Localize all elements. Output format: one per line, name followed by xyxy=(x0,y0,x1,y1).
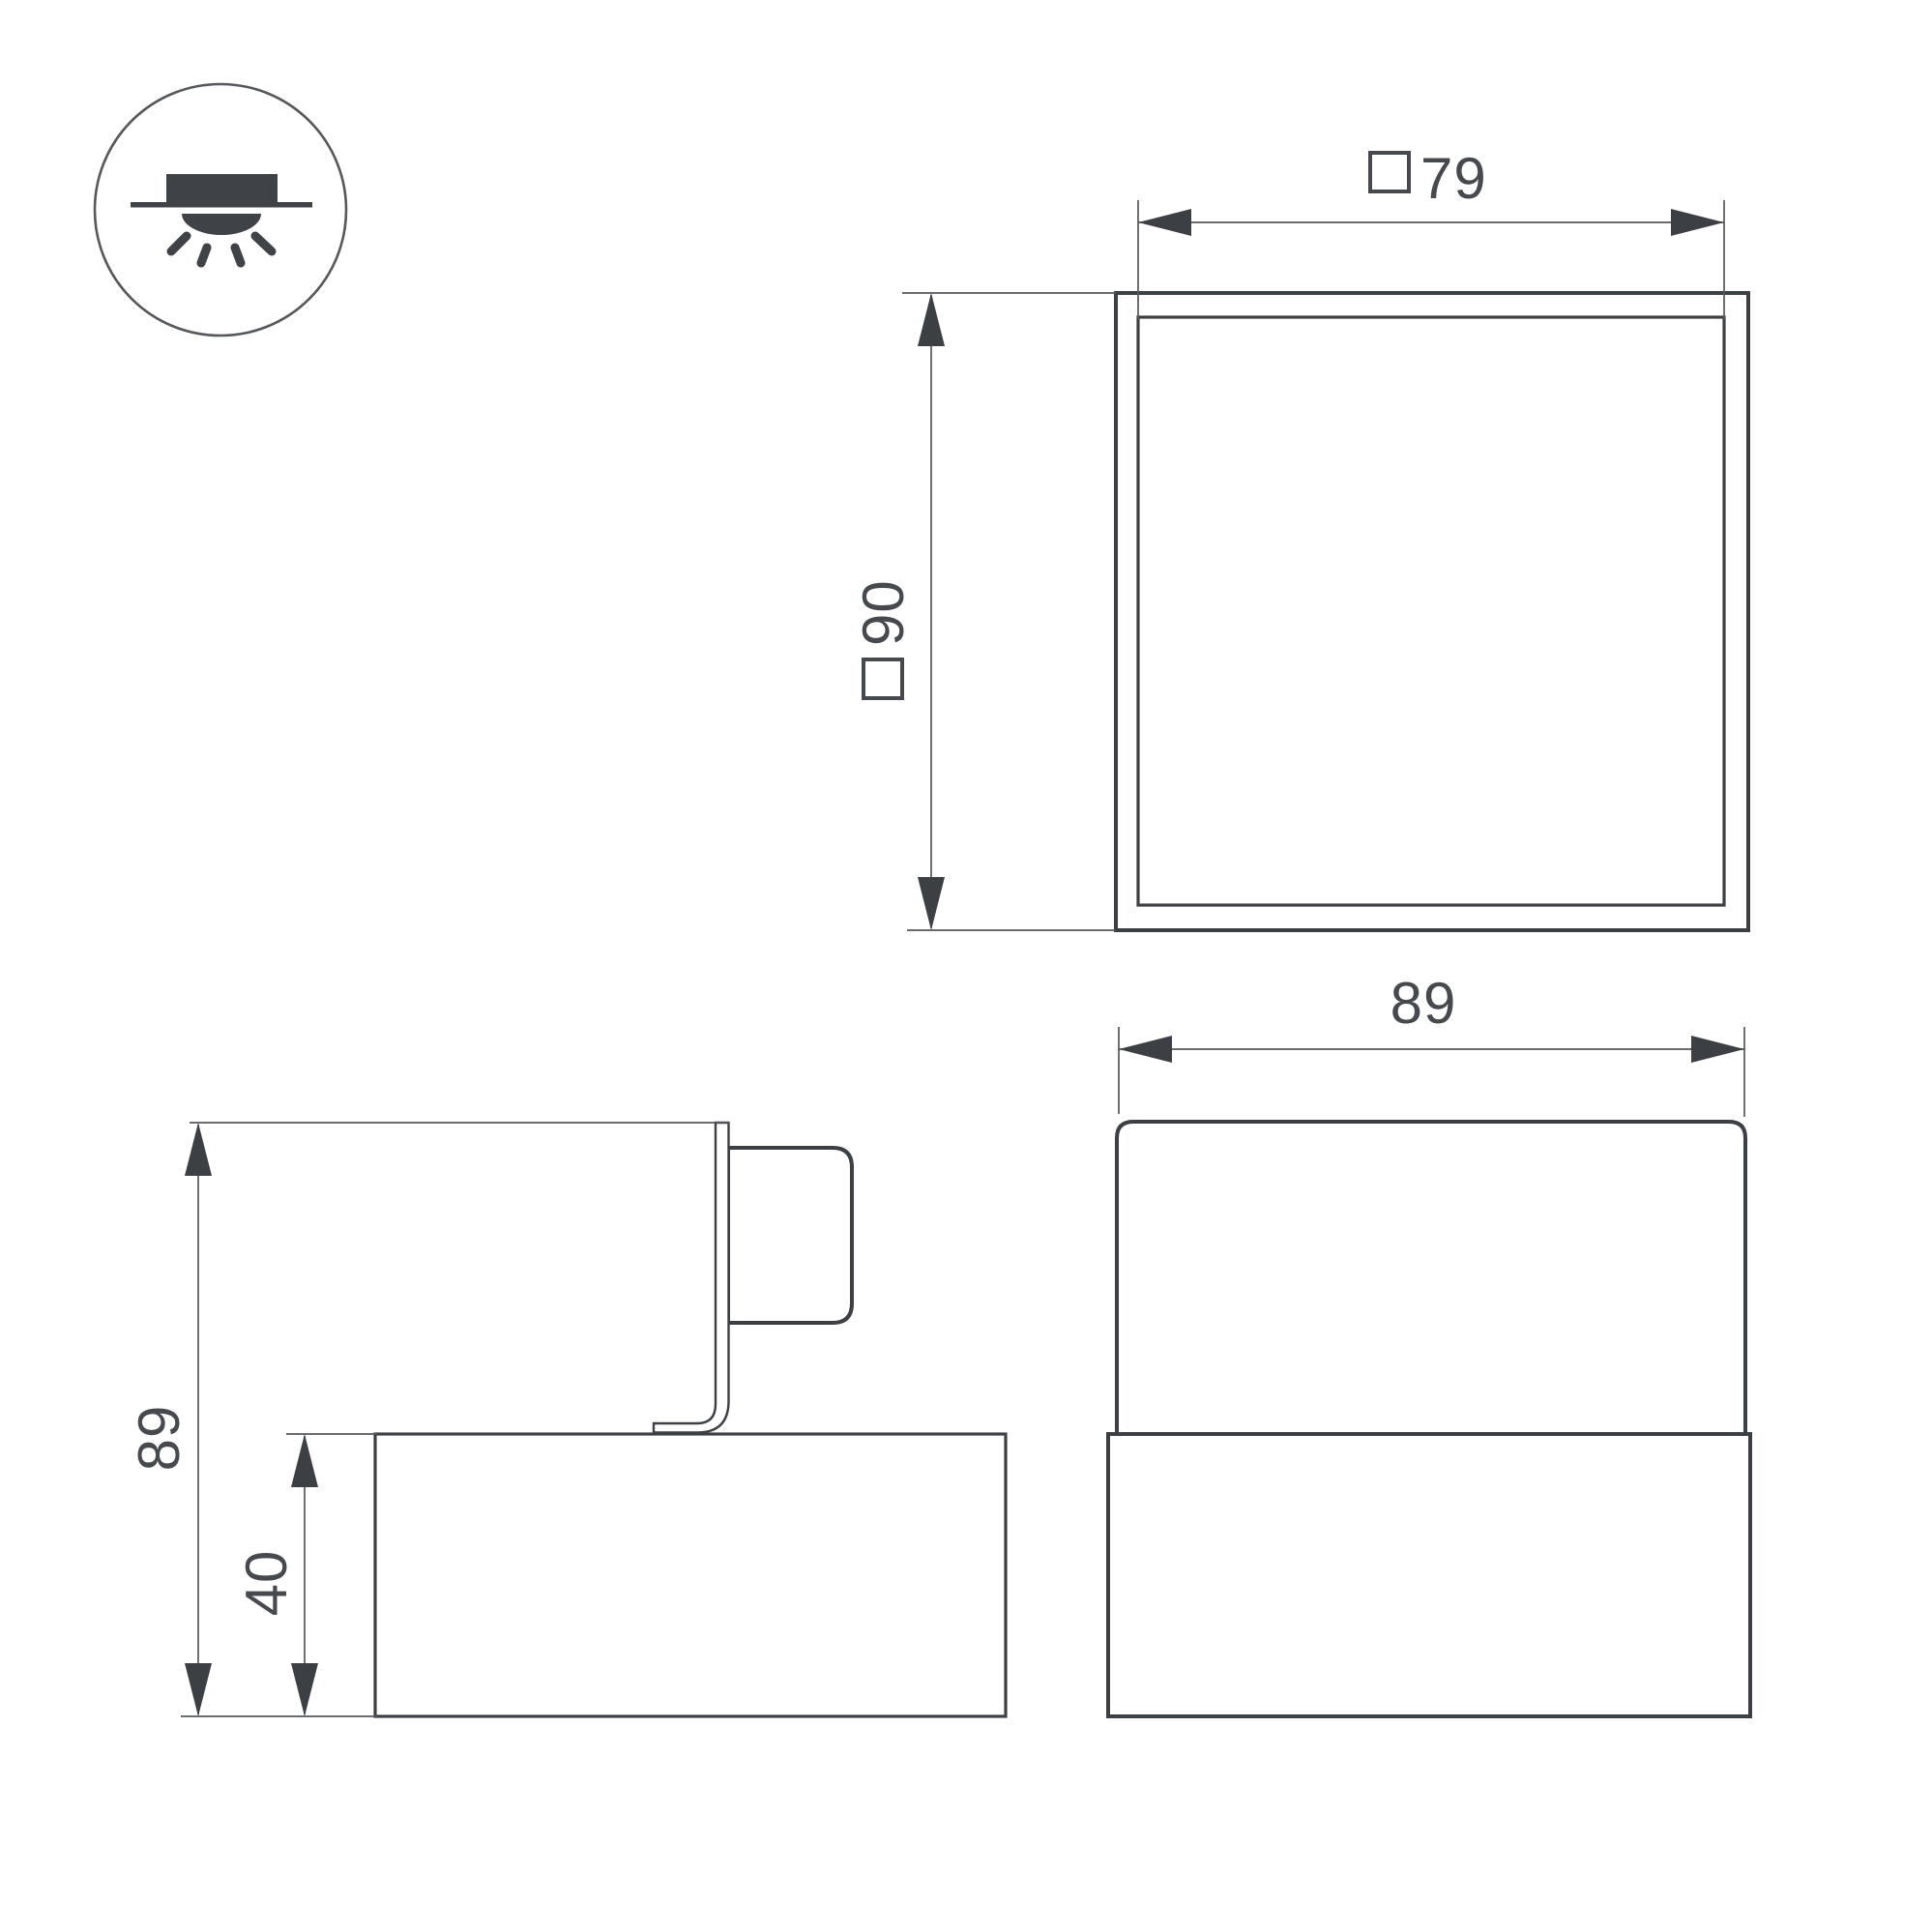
dimension-label: 89 xyxy=(127,1405,191,1472)
plan-inner-square xyxy=(1138,317,1724,905)
arrow-up-icon xyxy=(918,293,945,346)
icon-fixture-body xyxy=(166,174,278,204)
dimension-label: 79 xyxy=(1420,146,1487,211)
side-view: 89 40 xyxy=(127,1123,1006,1716)
dimension-height-89: 89 xyxy=(127,1123,377,1716)
icon-light-ray xyxy=(255,236,272,251)
front-view: 89 xyxy=(1108,971,1750,1716)
rotated-label-90: 90 xyxy=(851,579,916,698)
plan-view: 79 90 xyxy=(851,146,1748,930)
icon-circle xyxy=(95,84,346,336)
mounting-bracket xyxy=(654,1123,729,1433)
arrow-right-icon xyxy=(1691,1036,1744,1063)
icon-light-ray xyxy=(171,236,187,251)
arrow-up-icon xyxy=(185,1123,212,1176)
technical-drawing-page: 79 90 89 xyxy=(0,0,1932,1932)
rotated-label-40: 40 xyxy=(234,1550,299,1617)
square-symbol xyxy=(1370,153,1409,191)
recessed-ceiling-light-icon xyxy=(95,84,346,336)
dimension-size-90: 90 xyxy=(851,293,1116,930)
arrow-down-icon xyxy=(918,877,945,930)
driver-box xyxy=(728,1148,852,1323)
dimension-label: 90 xyxy=(851,579,916,646)
icon-ceiling-line xyxy=(131,202,312,208)
front-upper-body xyxy=(1117,1122,1745,1434)
front-base-body xyxy=(1108,1434,1750,1716)
arrow-left-icon xyxy=(1119,1036,1172,1063)
dimension-label: 40 xyxy=(234,1550,299,1617)
arrow-left-icon xyxy=(1138,209,1191,236)
arrow-right-icon xyxy=(1671,209,1724,236)
dimension-width-89: 89 xyxy=(1119,971,1744,1117)
icon-light-ray xyxy=(201,248,207,263)
dimension-label: 89 xyxy=(1390,971,1457,1036)
arrow-up-icon xyxy=(291,1434,318,1487)
dimension-base-40: 40 xyxy=(234,1434,377,1716)
rotated-label-89: 89 xyxy=(127,1405,191,1472)
arrow-down-icon xyxy=(291,1663,318,1716)
square-symbol xyxy=(864,659,902,698)
drawing-canvas: 79 90 89 xyxy=(0,0,1932,1932)
arrow-down-icon xyxy=(185,1663,212,1716)
side-body xyxy=(375,1434,1006,1716)
icon-light-ray xyxy=(235,248,241,263)
icon-lamp-dome xyxy=(182,214,261,235)
